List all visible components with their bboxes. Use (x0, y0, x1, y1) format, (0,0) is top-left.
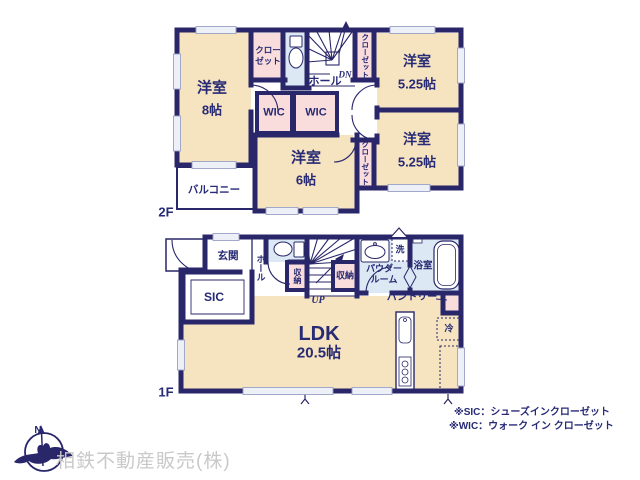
closet-east-bottom-label: クローゼット (361, 141, 369, 186)
closet-nw-label-1: クロー (255, 46, 281, 55)
room6-size: 6帖 (296, 174, 316, 187)
room525a-name: 洋室 (403, 54, 431, 68)
room8-size: 8帖 (202, 104, 222, 117)
compass-north-label: N (34, 426, 41, 436)
powder-room-label-1: パウダー (366, 265, 402, 274)
hall-label-2f: ホール (309, 77, 342, 88)
room525b-name: 洋室 (403, 132, 431, 146)
powder-room-label-2: ルーム (371, 276, 398, 285)
storage-left-label: 収納 (293, 268, 301, 284)
pantry-shelf (443, 293, 461, 313)
pantry-label: パントリー (387, 293, 438, 303)
toilet-icon-2f (289, 36, 303, 68)
fridge-label: 冷 (444, 325, 453, 334)
hall-label-1f: ホール (256, 255, 265, 282)
floor-label-1f: 1F (158, 386, 173, 399)
entrance-label: 玄関 (218, 251, 239, 262)
closet-east-top-label: クローゼット (361, 34, 369, 79)
room-525b (375, 110, 461, 188)
hall-pocket-2f (353, 80, 377, 140)
note-sic: ※SIC：シューズインクローゼット (454, 403, 610, 418)
floor-label-2f: 2F (158, 206, 173, 219)
bath-label: 浴室 (413, 261, 432, 271)
stairs-up-label: UP (311, 296, 324, 306)
wic-left-label: WIC (263, 108, 284, 119)
kitchen-counter (396, 312, 414, 391)
company-name: 相鉄不動産販売(株) (56, 446, 231, 473)
note-wic: ※WIC：ウォーク イン クローゼット (449, 417, 614, 432)
sic-label: SIC (204, 291, 224, 303)
floor-1f (166, 228, 465, 404)
balcony-label: バルコニー (188, 185, 240, 196)
ldk-size: 20.5帖 (297, 346, 341, 361)
vent-marks (301, 394, 452, 404)
room-8jo (177, 30, 251, 165)
room8-name: 洋室 (197, 81, 227, 96)
wic-right-label: WIC (305, 108, 326, 119)
storage-right-label: 収納 (336, 272, 354, 281)
washbasin-icon (361, 240, 389, 262)
floorplan-page: 2F 洋室 8帖 クロー ゼット ホール DN クローゼット 洋室 5.25帖 … (0, 0, 640, 480)
toilet-icon-1f (274, 242, 304, 257)
laundry-label: 洗 (395, 246, 404, 255)
room525b-size: 5.25帖 (398, 156, 436, 169)
room6-name: 洋室 (291, 151, 321, 166)
closet-nw-label-2: ゼット (255, 57, 281, 66)
room525a-size: 5.25帖 (398, 78, 436, 91)
bay-window-mark (391, 228, 407, 237)
stairs-dn-label: DN (339, 71, 352, 80)
ldk-name: LDK (298, 324, 339, 344)
